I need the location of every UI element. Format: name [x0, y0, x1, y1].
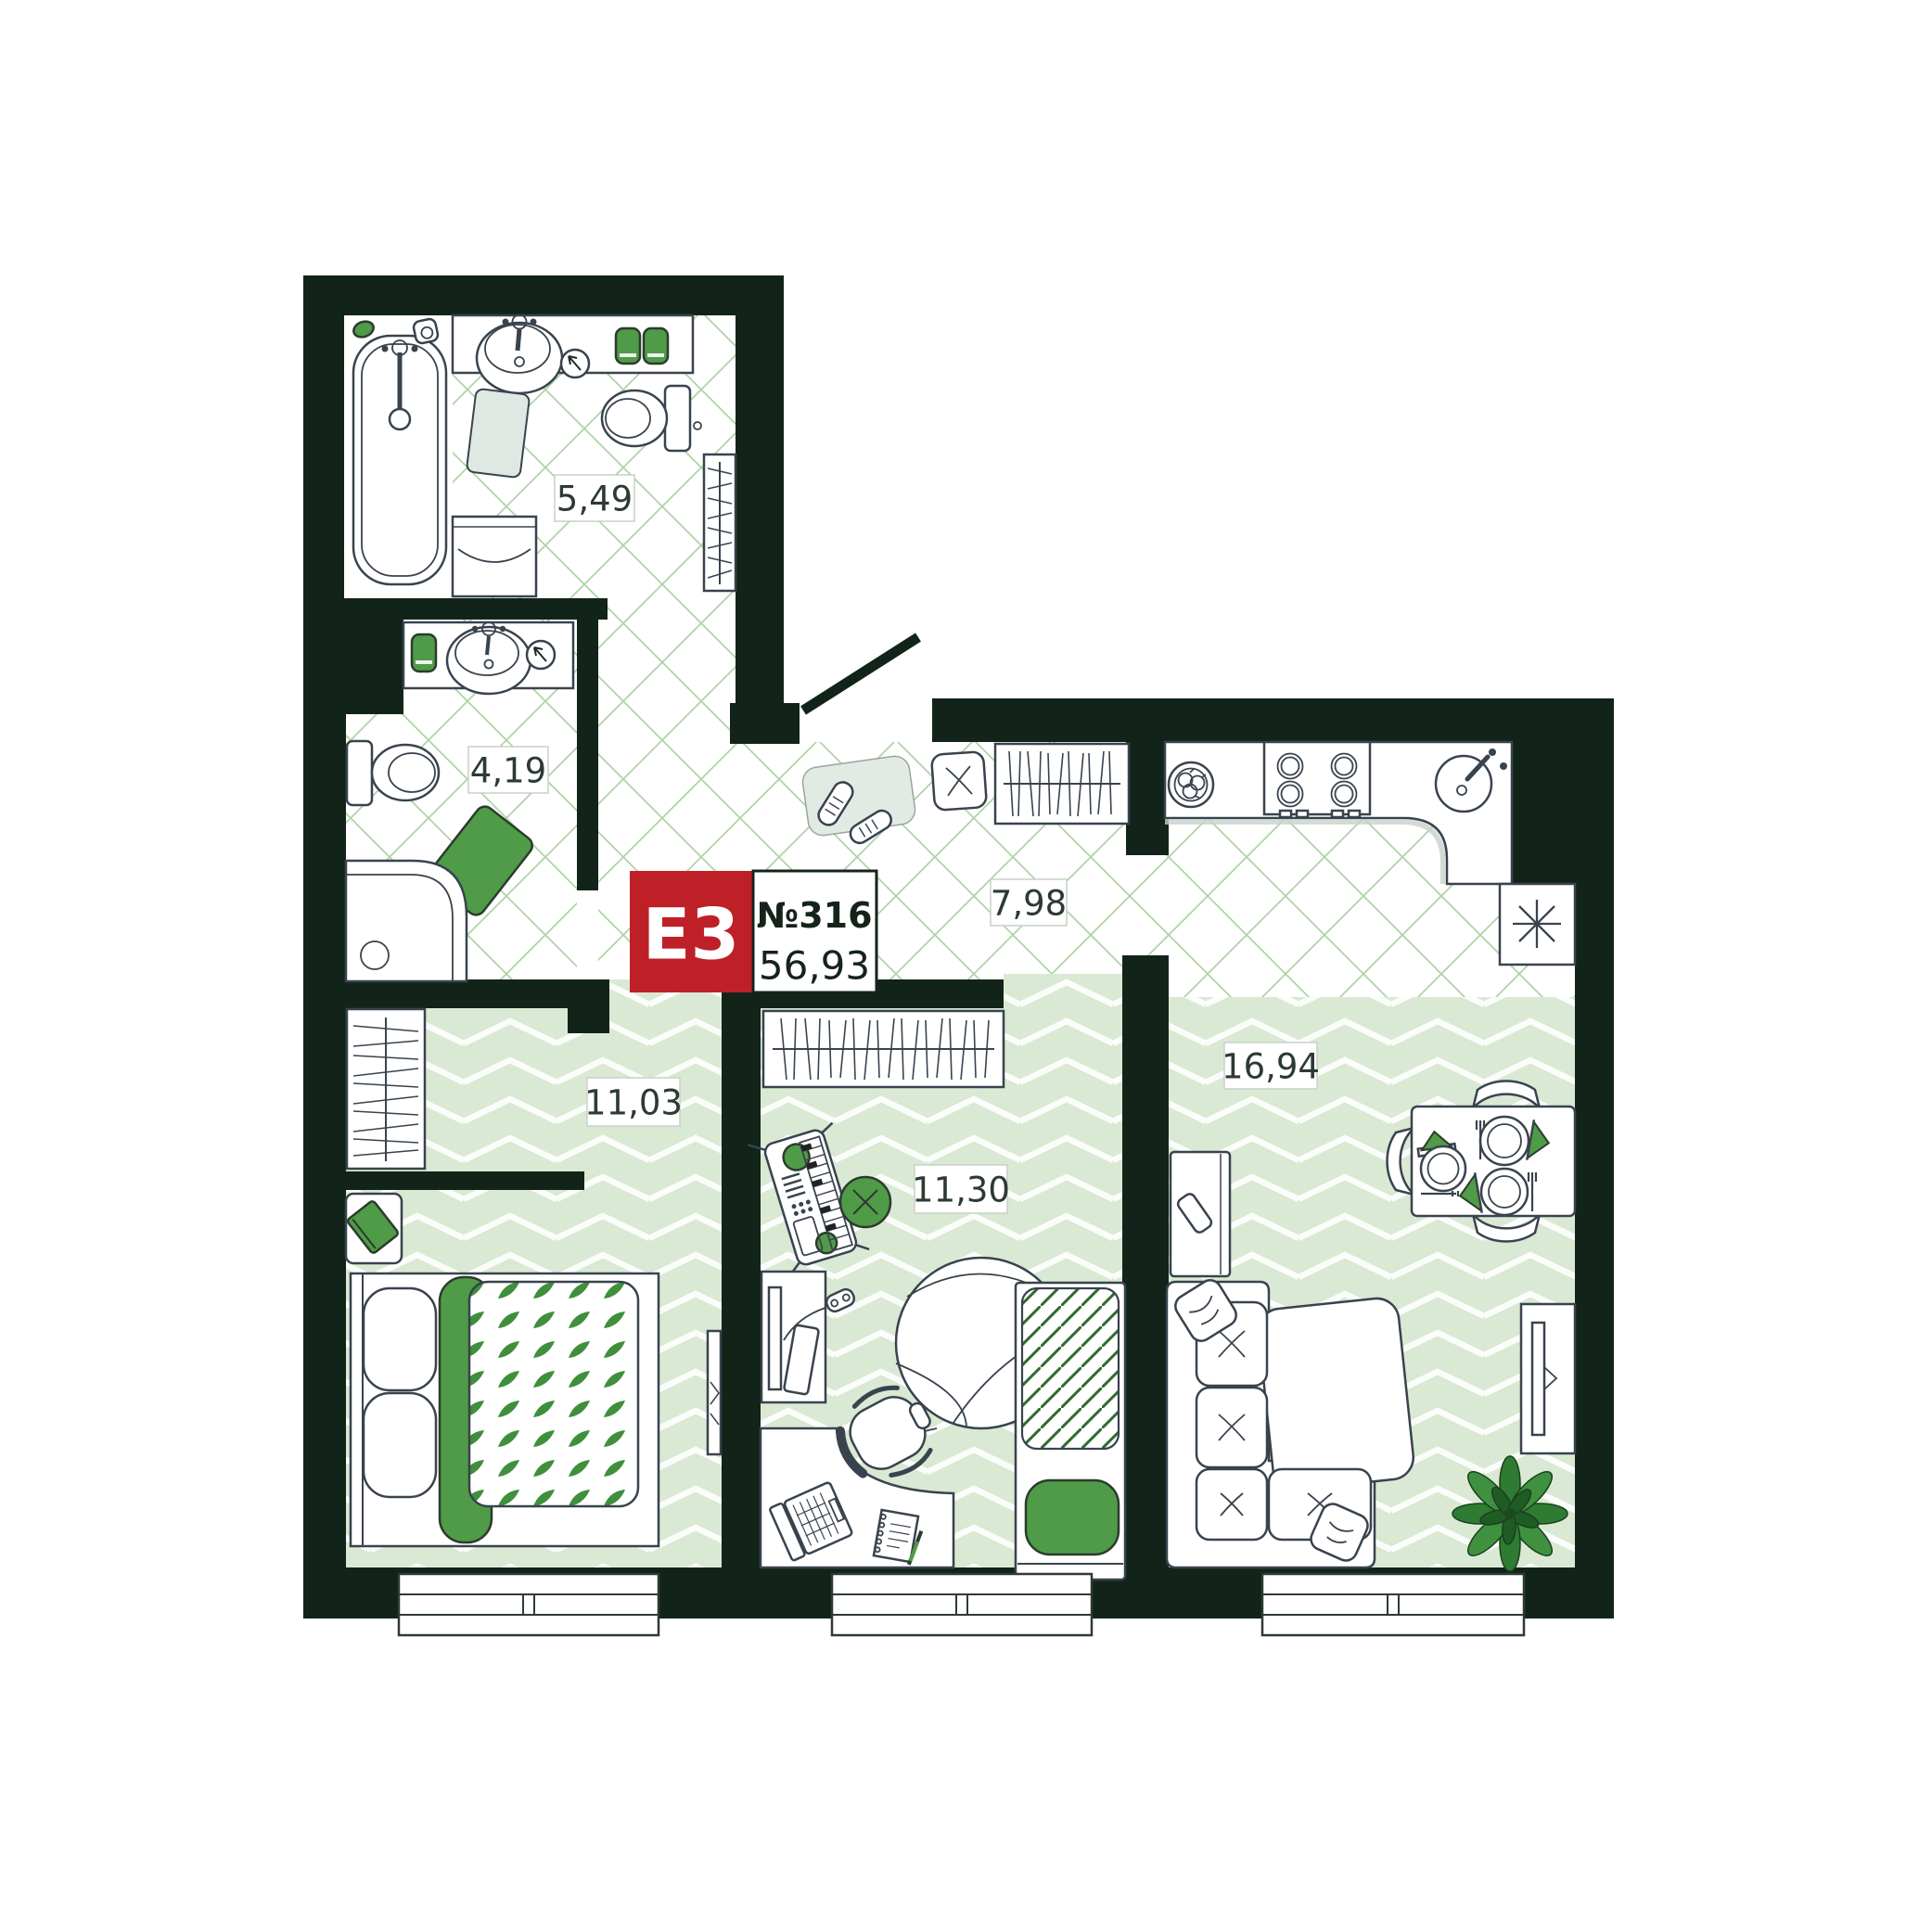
- room-area-label-hallway: 7,98: [991, 879, 1067, 926]
- tv-stand-icon: [761, 1272, 825, 1402]
- mirror-icon: [561, 350, 589, 377]
- stove-icon: [1264, 742, 1370, 817]
- kids-doorway-floor: [1004, 974, 1122, 1011]
- bathroom-area-value: 5,49: [557, 480, 633, 519]
- tall-mirror-icon: [708, 1331, 721, 1454]
- mirror-icon: [527, 641, 555, 669]
- bath-mat-icon: [467, 389, 531, 478]
- bathtub-icon: [353, 336, 446, 584]
- unit-type-label: Е3: [643, 893, 740, 976]
- window-icon: [399, 1574, 659, 1635]
- drying-rack-icon: [704, 454, 736, 591]
- dining-table-icon: [1412, 1107, 1575, 1216]
- single-bed-icon: [1016, 1283, 1125, 1580]
- wardrobe-icon: [347, 1009, 425, 1169]
- living-area-value: 16,94: [1222, 1047, 1320, 1087]
- coat-rack-icon: [995, 744, 1129, 824]
- sofa-chaise: [1256, 1297, 1415, 1492]
- towel-icon: [412, 634, 436, 672]
- vent-table-icon: [1500, 884, 1575, 965]
- fruit-plate-icon: [1169, 762, 1213, 807]
- shower-tray-icon: [346, 861, 467, 981]
- windows: [399, 1574, 1524, 1635]
- room-area-label-bedroom: 11,03: [584, 1078, 683, 1126]
- unit-total-area-label: 56,93: [759, 943, 870, 989]
- window-icon: [1262, 1574, 1524, 1635]
- room-area-label-toilet: 4,19: [468, 747, 548, 793]
- room-area-label-bathroom: 5,49: [555, 475, 634, 521]
- plant-icon: [1452, 1456, 1567, 1571]
- bedroom-area-value: 11,03: [584, 1083, 683, 1123]
- tv-panel-icon: [1521, 1304, 1575, 1453]
- pillow-icon: [1026, 1480, 1119, 1555]
- bathroom-floor-2: [693, 315, 736, 373]
- floor-plan: 5,49 4,19 7,98 11,03 11,30 16,94 Е3 №316…: [0, 0, 1932, 1932]
- window-icon: [832, 1574, 1092, 1635]
- toilet-icon: [602, 386, 701, 451]
- nightstand-icon: [346, 1194, 402, 1263]
- shower-head-icon: [413, 318, 439, 344]
- toilet-icon: [347, 741, 439, 805]
- room-area-label-kids-room: 11,30: [912, 1165, 1010, 1213]
- kitchen-entry-floor: [1126, 855, 1169, 955]
- pillow-icon: [364, 1393, 436, 1497]
- stool-icon: [931, 751, 987, 811]
- floor-plan-page: 5,49 4,19 7,98 11,03 11,30 16,94 Е3 №316…: [0, 0, 1932, 1932]
- bedroom-niche-wall: [346, 1171, 584, 1190]
- room-area-label-living: 16,94: [1222, 1043, 1320, 1089]
- entry-door-icon: [803, 637, 918, 710]
- washing-machine-icon: [453, 517, 536, 596]
- fridge-icon: [1171, 1152, 1230, 1276]
- double-bed-icon: [351, 1273, 659, 1546]
- hallway-area-value: 7,98: [991, 884, 1067, 924]
- unit-number-label: №316: [756, 895, 872, 936]
- stool-icon: [840, 1177, 890, 1227]
- unit-badge: Е3 №316 56,93: [630, 871, 876, 992]
- toilet-area-value: 4,19: [470, 751, 546, 791]
- wardrobe-icon: [763, 1011, 1004, 1087]
- pillow-icon: [364, 1288, 436, 1390]
- vent-shaft: [1512, 736, 1614, 890]
- kids-room-area-value: 11,30: [912, 1171, 1010, 1210]
